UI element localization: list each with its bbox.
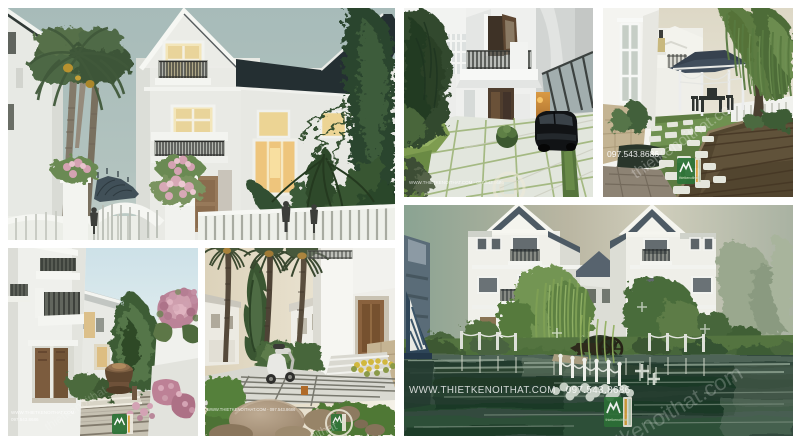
svg-text:WWW.THIETKENOITHAT.COM - 097.5: WWW.THIETKENOITHAT.COM - 097.543.8686 (409, 385, 631, 396)
svg-text:thietkenoithat: thietkenoithat (679, 176, 698, 180)
svg-text:097.543.8686: 097.543.8686 (11, 417, 39, 422)
svg-text:WWW.THIETKENOITHAT.COM - 097.5: WWW.THIETKENOITHAT.COM - 097.543.8686 (207, 407, 296, 412)
svg-text:thietkenoithat: thietkenoithat (606, 418, 627, 422)
svg-text:WWW.THIETKENOITHAT.COM - 097.5: WWW.THIETKENOITHAT.COM - 097.543.8686 (409, 180, 504, 185)
